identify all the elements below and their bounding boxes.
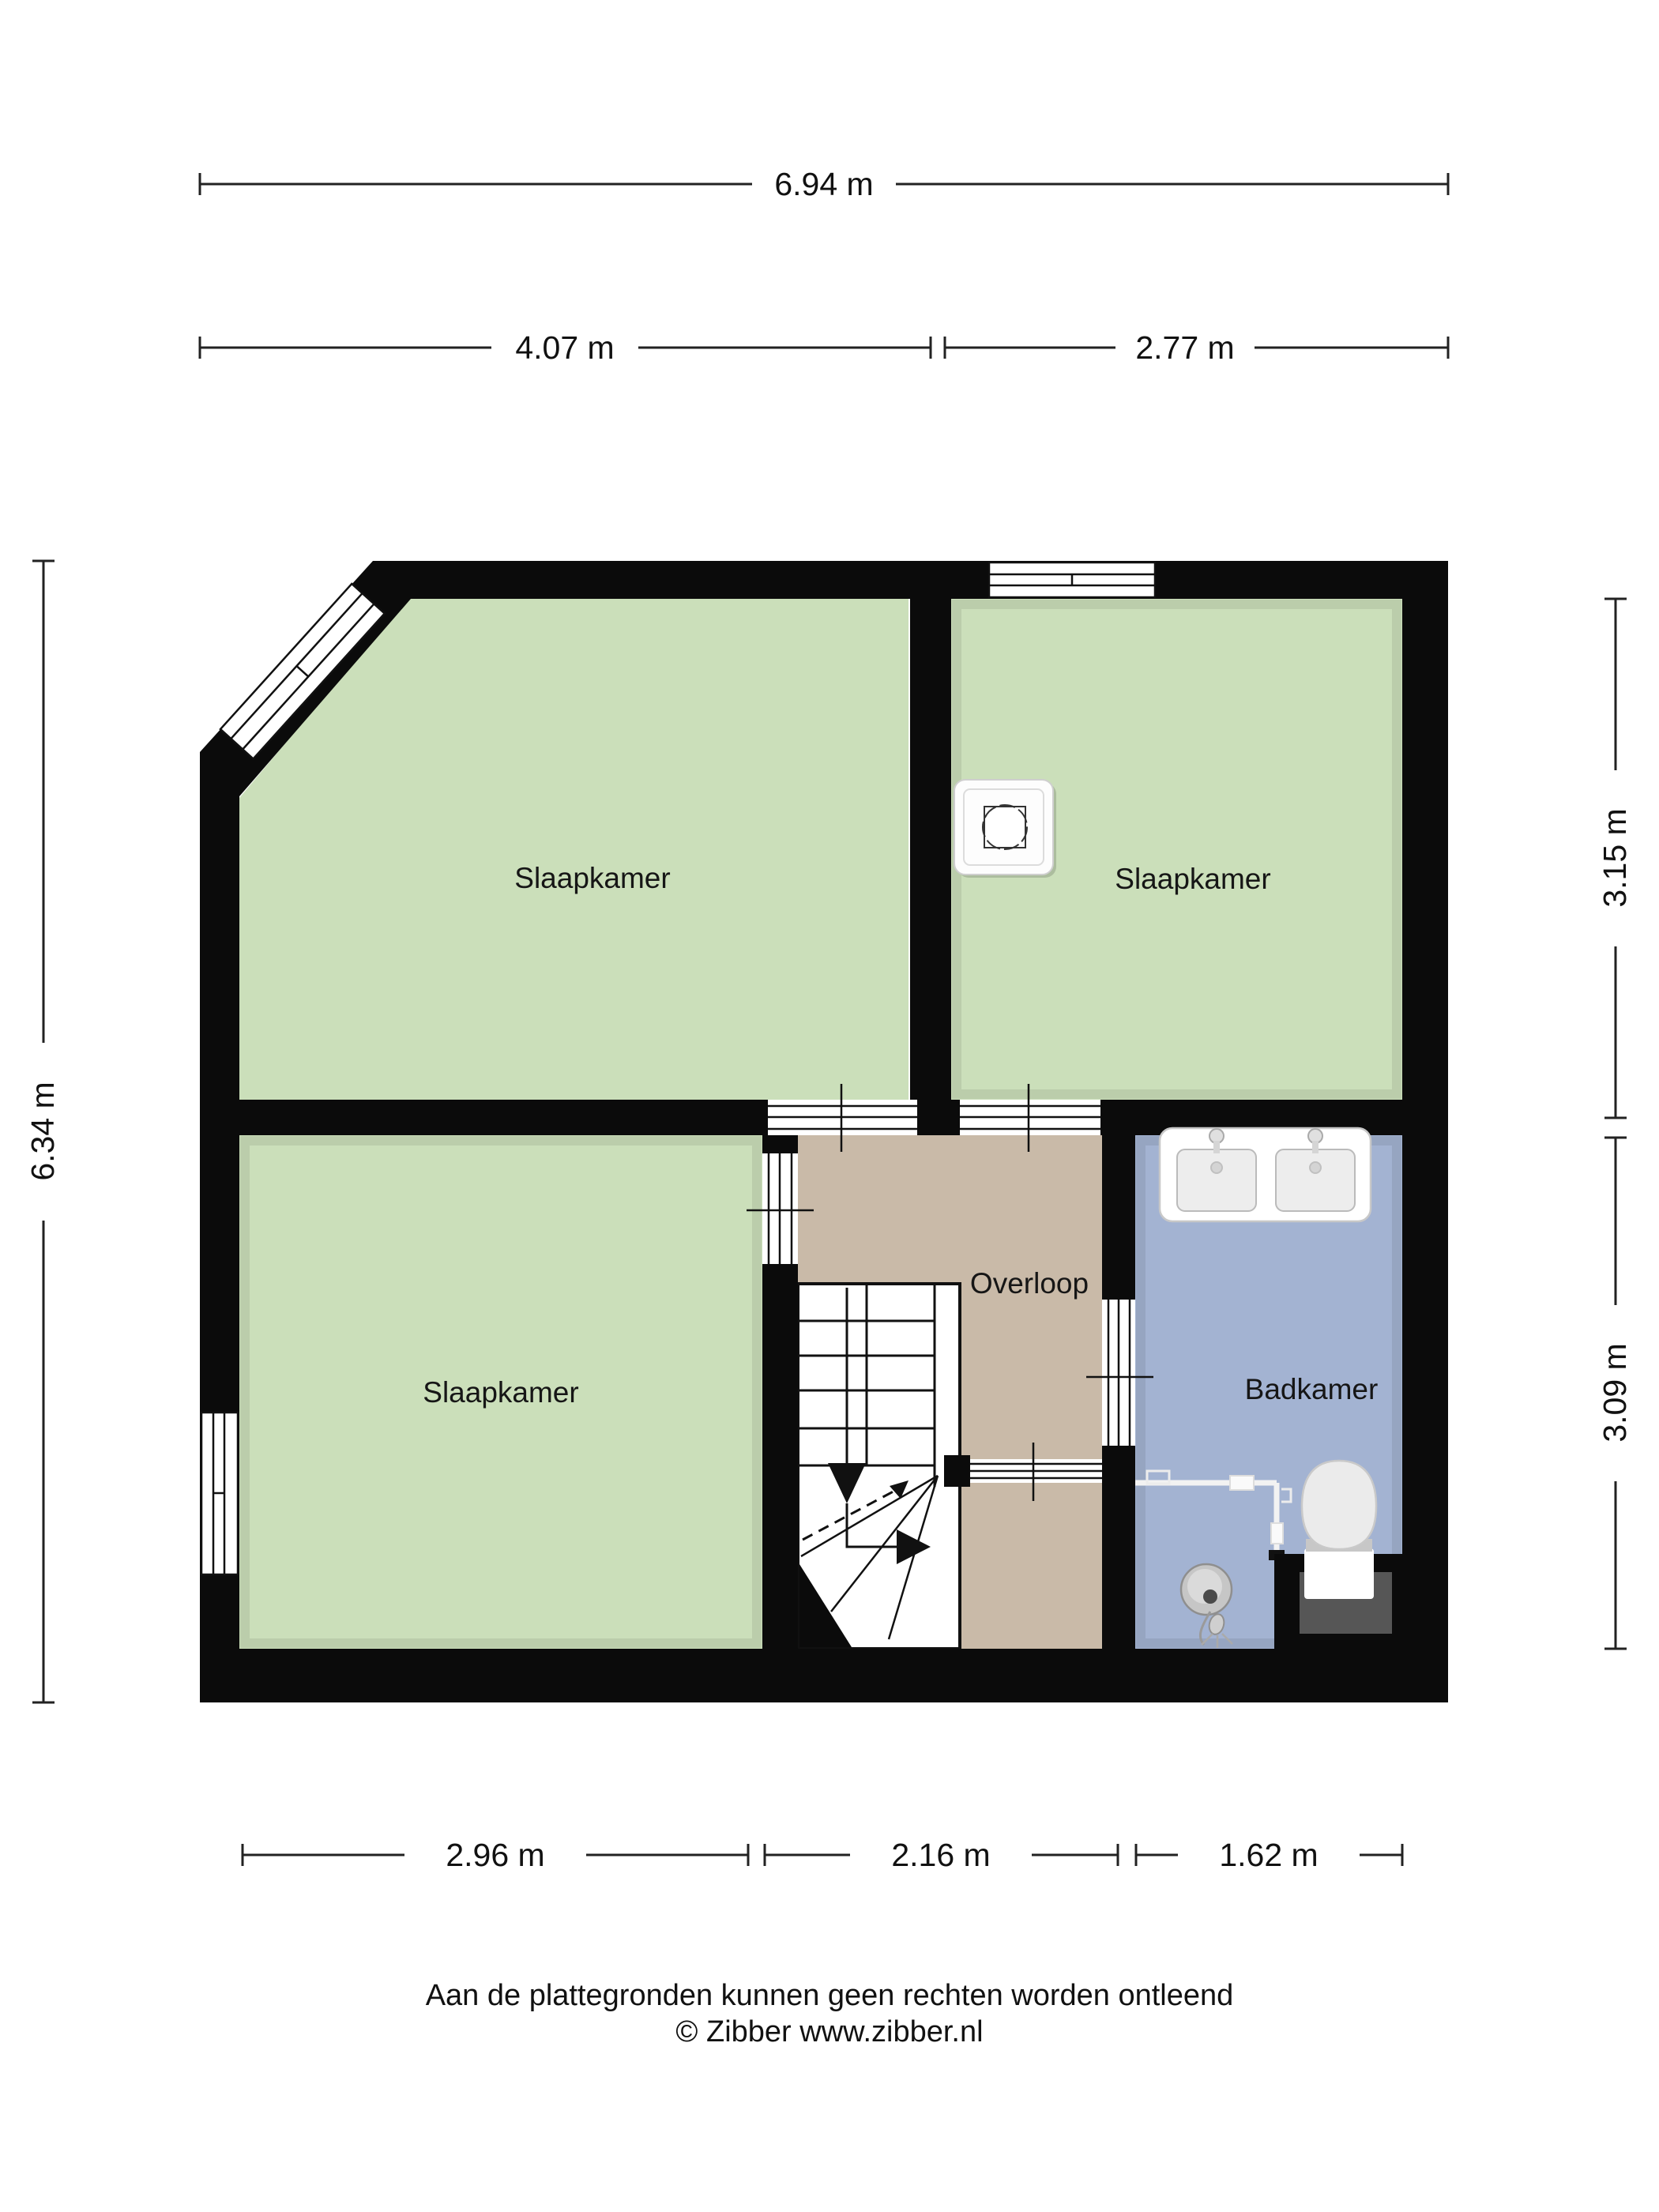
wall-between-bedrooms xyxy=(910,599,951,1100)
label-landing: Overloop xyxy=(970,1267,1089,1300)
dim-total-width: 6.94 m xyxy=(774,166,873,202)
window-icon xyxy=(201,1413,238,1574)
sink-drain xyxy=(1310,1162,1321,1173)
dim-bottom-middle: 2.16 m xyxy=(891,1837,990,1873)
label-bedroom-top-right: Slaapkamer xyxy=(1115,863,1270,895)
dim-height-top-right: 3.15 m xyxy=(1597,808,1633,907)
footer-copyright: © Zibber www.zibber.nl xyxy=(675,2015,983,2048)
wall-horizontal-left xyxy=(239,1100,768,1135)
label-bedroom-bottom-left: Slaapkamer xyxy=(423,1376,578,1409)
dim-height-bottom-right: 3.09 m xyxy=(1597,1343,1633,1442)
sink-tap-spout xyxy=(1213,1141,1220,1153)
window-icon xyxy=(989,562,1155,597)
shower-screen-handle xyxy=(1230,1476,1254,1490)
footer-disclaimer: Aan de plattegronden kunnen geen rechten… xyxy=(426,1979,1234,2012)
wall-horizontal-post xyxy=(910,1100,960,1135)
wall-bedroom-landing-lower xyxy=(762,1264,798,1649)
wall-bathroom-left-upper xyxy=(1102,1135,1135,1300)
floorplan-page: 6.94 m 4.07 m 2.77 m 6.34 m 3.15 m 3.09 … xyxy=(0,0,1659,2212)
wall-bedroom-landing-upper xyxy=(762,1135,798,1153)
sink-tap-spout xyxy=(1312,1141,1319,1153)
double-sink-icon xyxy=(1160,1128,1371,1221)
label-bedroom-top-left: Slaapkamer xyxy=(514,862,670,894)
dim-total-height: 6.34 m xyxy=(24,1082,61,1180)
stairs xyxy=(798,1284,960,1649)
toilet-cistern xyxy=(1304,1548,1374,1599)
ventilation-unit-icon xyxy=(954,780,1056,878)
toilet-bowl xyxy=(1302,1461,1376,1549)
floorplan-drawing: 6.94 m 4.07 m 2.77 m 6.34 m 3.15 m 3.09 … xyxy=(0,0,1659,2212)
footer: Aan de plattegronden kunnen geen rechten… xyxy=(426,1979,1234,2048)
sink-drain xyxy=(1211,1162,1222,1173)
shower-screen-hinge xyxy=(1271,1523,1283,1544)
dim-width-left: 4.07 m xyxy=(515,329,614,366)
wall-bathroom-left-lower xyxy=(1102,1446,1135,1649)
dim-bottom-left: 2.96 m xyxy=(446,1837,544,1873)
dim-width-right: 2.77 m xyxy=(1135,329,1234,366)
label-bathroom: Badkamer xyxy=(1245,1373,1379,1405)
newel-post xyxy=(944,1455,970,1487)
dim-bottom-right: 1.62 m xyxy=(1219,1837,1318,1873)
